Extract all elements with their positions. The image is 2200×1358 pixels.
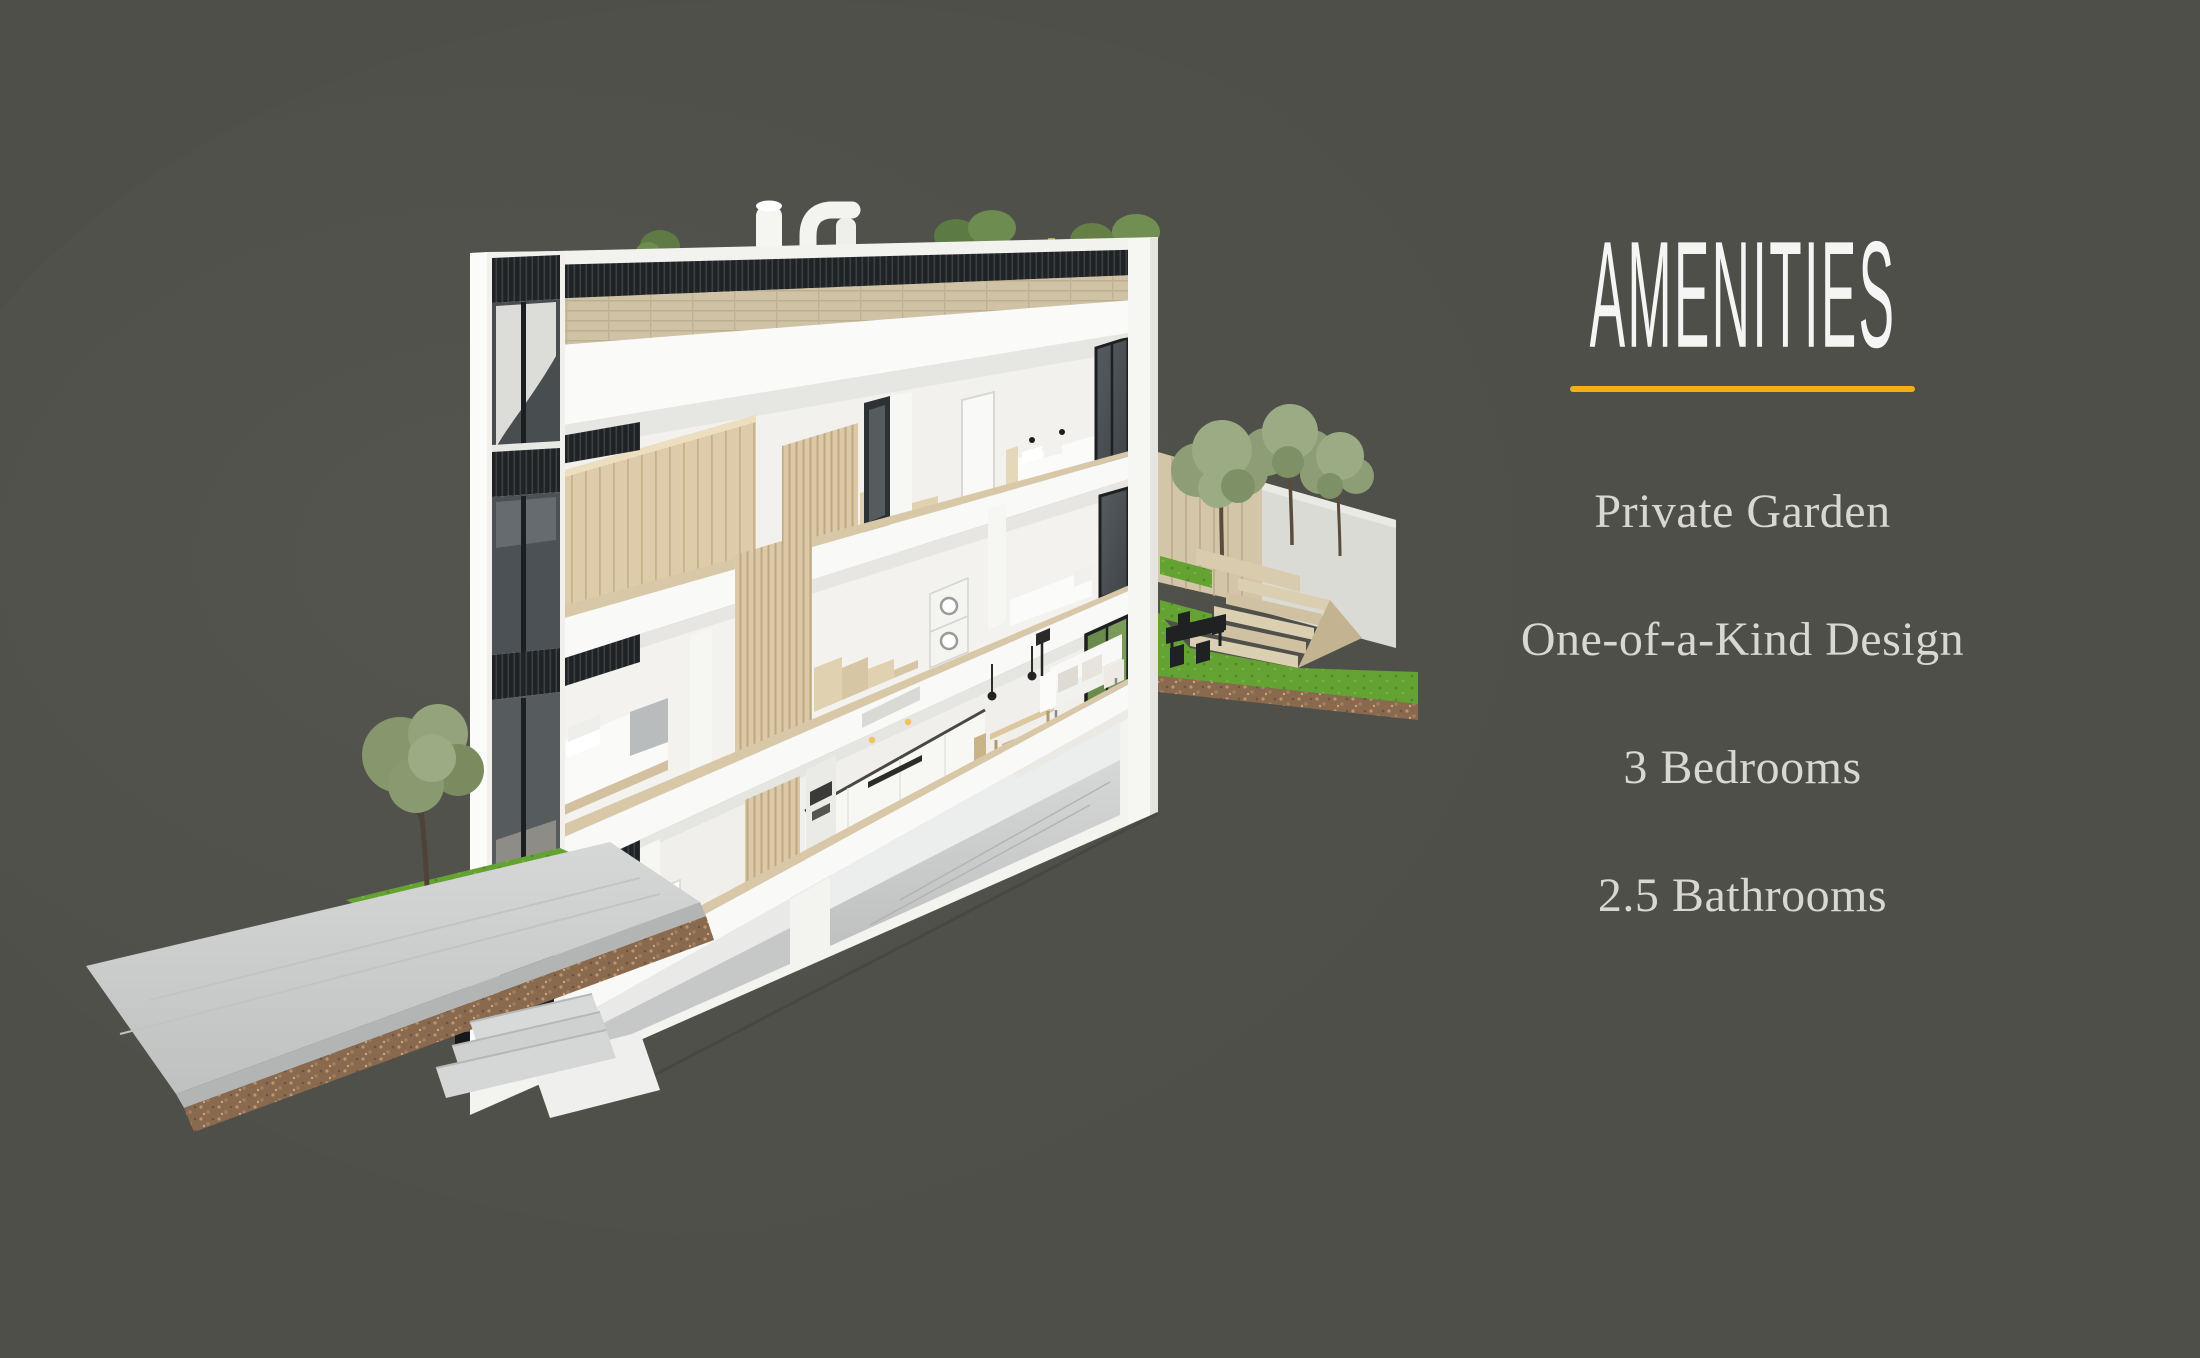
amenities-panel: AMENITIES Private Garden One-of-a-Kind D…	[1455, 238, 2030, 996]
laundry-stack	[930, 578, 968, 668]
amenity-item-private-garden: Private Garden	[1455, 484, 2030, 540]
second-floor-window	[1100, 488, 1128, 598]
title-underline	[1570, 386, 1915, 392]
bathroom-door	[962, 392, 994, 505]
page-title: AMENITIES	[1589, 207, 1896, 381]
amenity-item-design: One-of-a-Kind Design	[1455, 612, 2030, 668]
amenities-list: Private Garden One-of-a-Kind Design 3 Be…	[1455, 484, 2030, 924]
amenity-item-bathrooms: 2.5 Bathrooms	[1455, 868, 2030, 924]
slide: AMENITIES Private Garden One-of-a-Kind D…	[0, 0, 2200, 1358]
title-wrap: AMENITIES	[1455, 238, 2030, 350]
amenity-item-bedrooms: 3 Bedrooms	[1455, 740, 2030, 796]
